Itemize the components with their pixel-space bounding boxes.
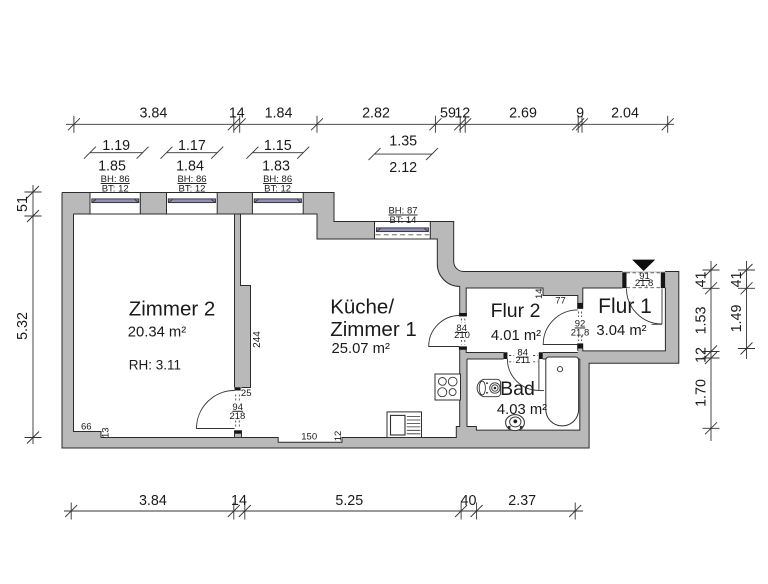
svg-text:244: 244 bbox=[252, 331, 263, 348]
svg-text:1.17: 1.17 bbox=[178, 138, 206, 154]
svg-text:1.70: 1.70 bbox=[694, 379, 710, 407]
svg-text:1.15: 1.15 bbox=[264, 138, 292, 154]
svg-text:1.53: 1.53 bbox=[694, 307, 710, 335]
svg-text:25: 25 bbox=[241, 388, 252, 399]
svg-text:1.84: 1.84 bbox=[265, 106, 293, 122]
svg-text:51: 51 bbox=[15, 196, 31, 212]
svg-text:RH: 3.11: RH: 3.11 bbox=[129, 358, 181, 373]
svg-text:BT: 12: BT: 12 bbox=[102, 184, 129, 195]
svg-text:1.85: 1.85 bbox=[98, 158, 126, 174]
svg-text:66: 66 bbox=[81, 421, 92, 432]
svg-text:12: 12 bbox=[454, 106, 470, 122]
svg-text:9: 9 bbox=[576, 106, 584, 122]
svg-text:Bad: Bad bbox=[500, 378, 535, 400]
svg-text:41: 41 bbox=[729, 272, 745, 288]
svg-text:1.19: 1.19 bbox=[102, 138, 130, 154]
svg-text:Küche/: Küche/ bbox=[330, 296, 394, 319]
svg-text:3.84: 3.84 bbox=[139, 493, 167, 509]
svg-text:BT: 12: BT: 12 bbox=[264, 184, 291, 195]
svg-text:Flur 1: Flur 1 bbox=[598, 295, 652, 318]
svg-text:41: 41 bbox=[694, 272, 710, 288]
svg-text:Zimmer 2: Zimmer 2 bbox=[129, 298, 216, 321]
svg-text:2.04: 2.04 bbox=[611, 106, 639, 122]
svg-text:21,8: 21,8 bbox=[635, 278, 654, 289]
svg-text:2.12: 2.12 bbox=[389, 160, 417, 176]
svg-text:13: 13 bbox=[101, 427, 112, 438]
svg-text:1.35: 1.35 bbox=[389, 133, 417, 149]
svg-text:5.32: 5.32 bbox=[15, 312, 31, 340]
svg-text:2.82: 2.82 bbox=[362, 106, 390, 122]
svg-text:4.03 m²: 4.03 m² bbox=[497, 402, 547, 418]
svg-text:77: 77 bbox=[555, 296, 566, 307]
svg-text:2.69: 2.69 bbox=[509, 106, 537, 122]
svg-text:20.34 m²: 20.34 m² bbox=[128, 324, 186, 340]
svg-text:14: 14 bbox=[534, 288, 545, 299]
svg-text:3.84: 3.84 bbox=[139, 106, 167, 122]
svg-text:1.49: 1.49 bbox=[729, 305, 745, 333]
svg-text:2.37: 2.37 bbox=[508, 493, 536, 509]
svg-text:12: 12 bbox=[694, 347, 710, 363]
svg-text:1.83: 1.83 bbox=[262, 158, 290, 174]
svg-text:14: 14 bbox=[229, 106, 245, 122]
svg-text:40: 40 bbox=[461, 493, 477, 509]
svg-text:1.84: 1.84 bbox=[176, 158, 204, 174]
svg-text:21,8: 21,8 bbox=[571, 327, 590, 338]
svg-text:5.25: 5.25 bbox=[335, 493, 363, 509]
svg-text:Zimmer 1: Zimmer 1 bbox=[330, 318, 417, 341]
svg-text:4.01 m²: 4.01 m² bbox=[491, 328, 541, 344]
svg-text:211: 211 bbox=[515, 355, 530, 366]
svg-text:14: 14 bbox=[231, 493, 247, 509]
svg-text:BT: 12: BT: 12 bbox=[179, 184, 206, 195]
svg-text:BT: 14: BT: 14 bbox=[390, 215, 417, 226]
svg-text:Flur 2: Flur 2 bbox=[491, 300, 541, 322]
svg-text:25.07 m²: 25.07 m² bbox=[332, 341, 390, 357]
svg-text:150: 150 bbox=[301, 431, 317, 442]
svg-text:218: 218 bbox=[229, 411, 245, 422]
svg-text:12: 12 bbox=[333, 431, 344, 442]
svg-text:210: 210 bbox=[454, 330, 470, 341]
svg-text:3.04 m²: 3.04 m² bbox=[596, 323, 646, 339]
